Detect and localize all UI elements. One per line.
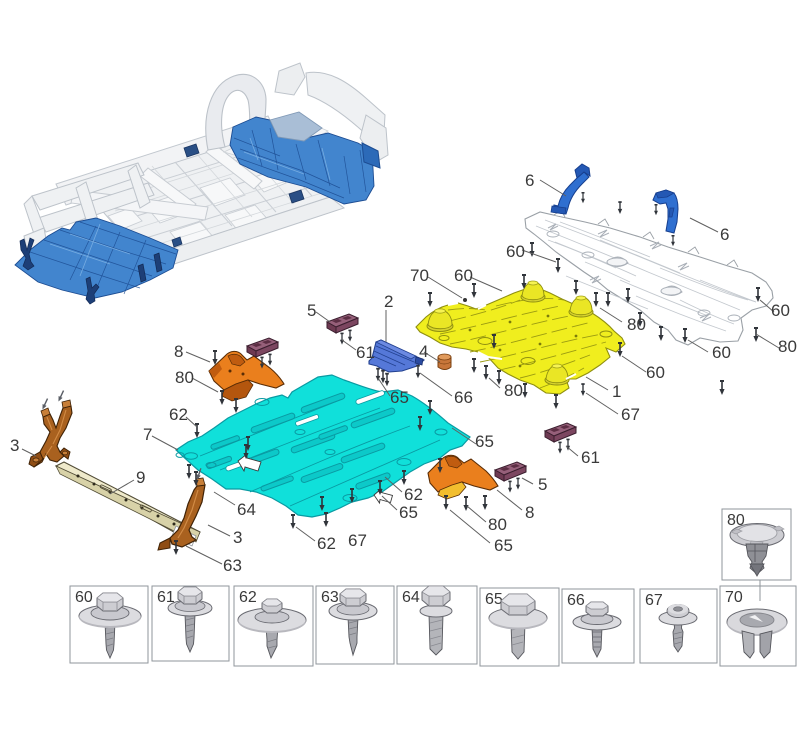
svg-text:6: 6 [720, 225, 729, 244]
svg-text:60: 60 [454, 266, 473, 285]
svg-text:60: 60 [646, 363, 665, 382]
svg-text:65: 65 [399, 503, 418, 522]
svg-text:61: 61 [356, 343, 375, 362]
svg-text:2: 2 [384, 292, 393, 311]
svg-text:63: 63 [223, 556, 242, 575]
svg-text:80: 80 [488, 515, 507, 534]
svg-text:4: 4 [419, 342, 428, 361]
svg-text:65: 65 [475, 432, 494, 451]
svg-text:80: 80 [175, 368, 194, 387]
svg-text:65: 65 [485, 591, 503, 608]
svg-text:63: 63 [321, 589, 339, 606]
svg-text:66: 66 [454, 388, 473, 407]
svg-text:65: 65 [390, 388, 409, 407]
svg-text:80: 80 [627, 315, 646, 334]
svg-text:67: 67 [348, 531, 367, 550]
svg-text:6: 6 [525, 171, 534, 190]
svg-text:70: 70 [410, 266, 429, 285]
svg-text:67: 67 [621, 405, 640, 424]
svg-text:67: 67 [645, 592, 663, 609]
svg-text:8: 8 [174, 342, 183, 361]
svg-text:61: 61 [581, 448, 600, 467]
svg-text:60: 60 [712, 343, 731, 362]
svg-text:62: 62 [239, 589, 257, 606]
svg-text:70: 70 [725, 589, 743, 606]
svg-text:1: 1 [612, 382, 621, 401]
svg-text:60: 60 [75, 589, 93, 606]
svg-text:65: 65 [494, 536, 513, 555]
svg-text:64: 64 [237, 500, 256, 519]
svg-text:62: 62 [169, 405, 188, 424]
svg-text:80: 80 [504, 381, 523, 400]
svg-text:7: 7 [143, 425, 152, 444]
svg-text:3: 3 [233, 528, 242, 547]
svg-text:64: 64 [402, 589, 420, 606]
svg-text:5: 5 [538, 475, 547, 494]
svg-text:62: 62 [404, 485, 423, 504]
svg-text:60: 60 [506, 242, 525, 261]
svg-text:62: 62 [317, 534, 336, 553]
svg-text:3: 3 [10, 436, 19, 455]
svg-text:60: 60 [771, 301, 790, 320]
svg-text:80: 80 [778, 337, 797, 356]
svg-text:5: 5 [307, 301, 316, 320]
svg-text:66: 66 [567, 592, 585, 609]
svg-text:8: 8 [525, 503, 534, 522]
svg-text:9: 9 [136, 468, 145, 487]
